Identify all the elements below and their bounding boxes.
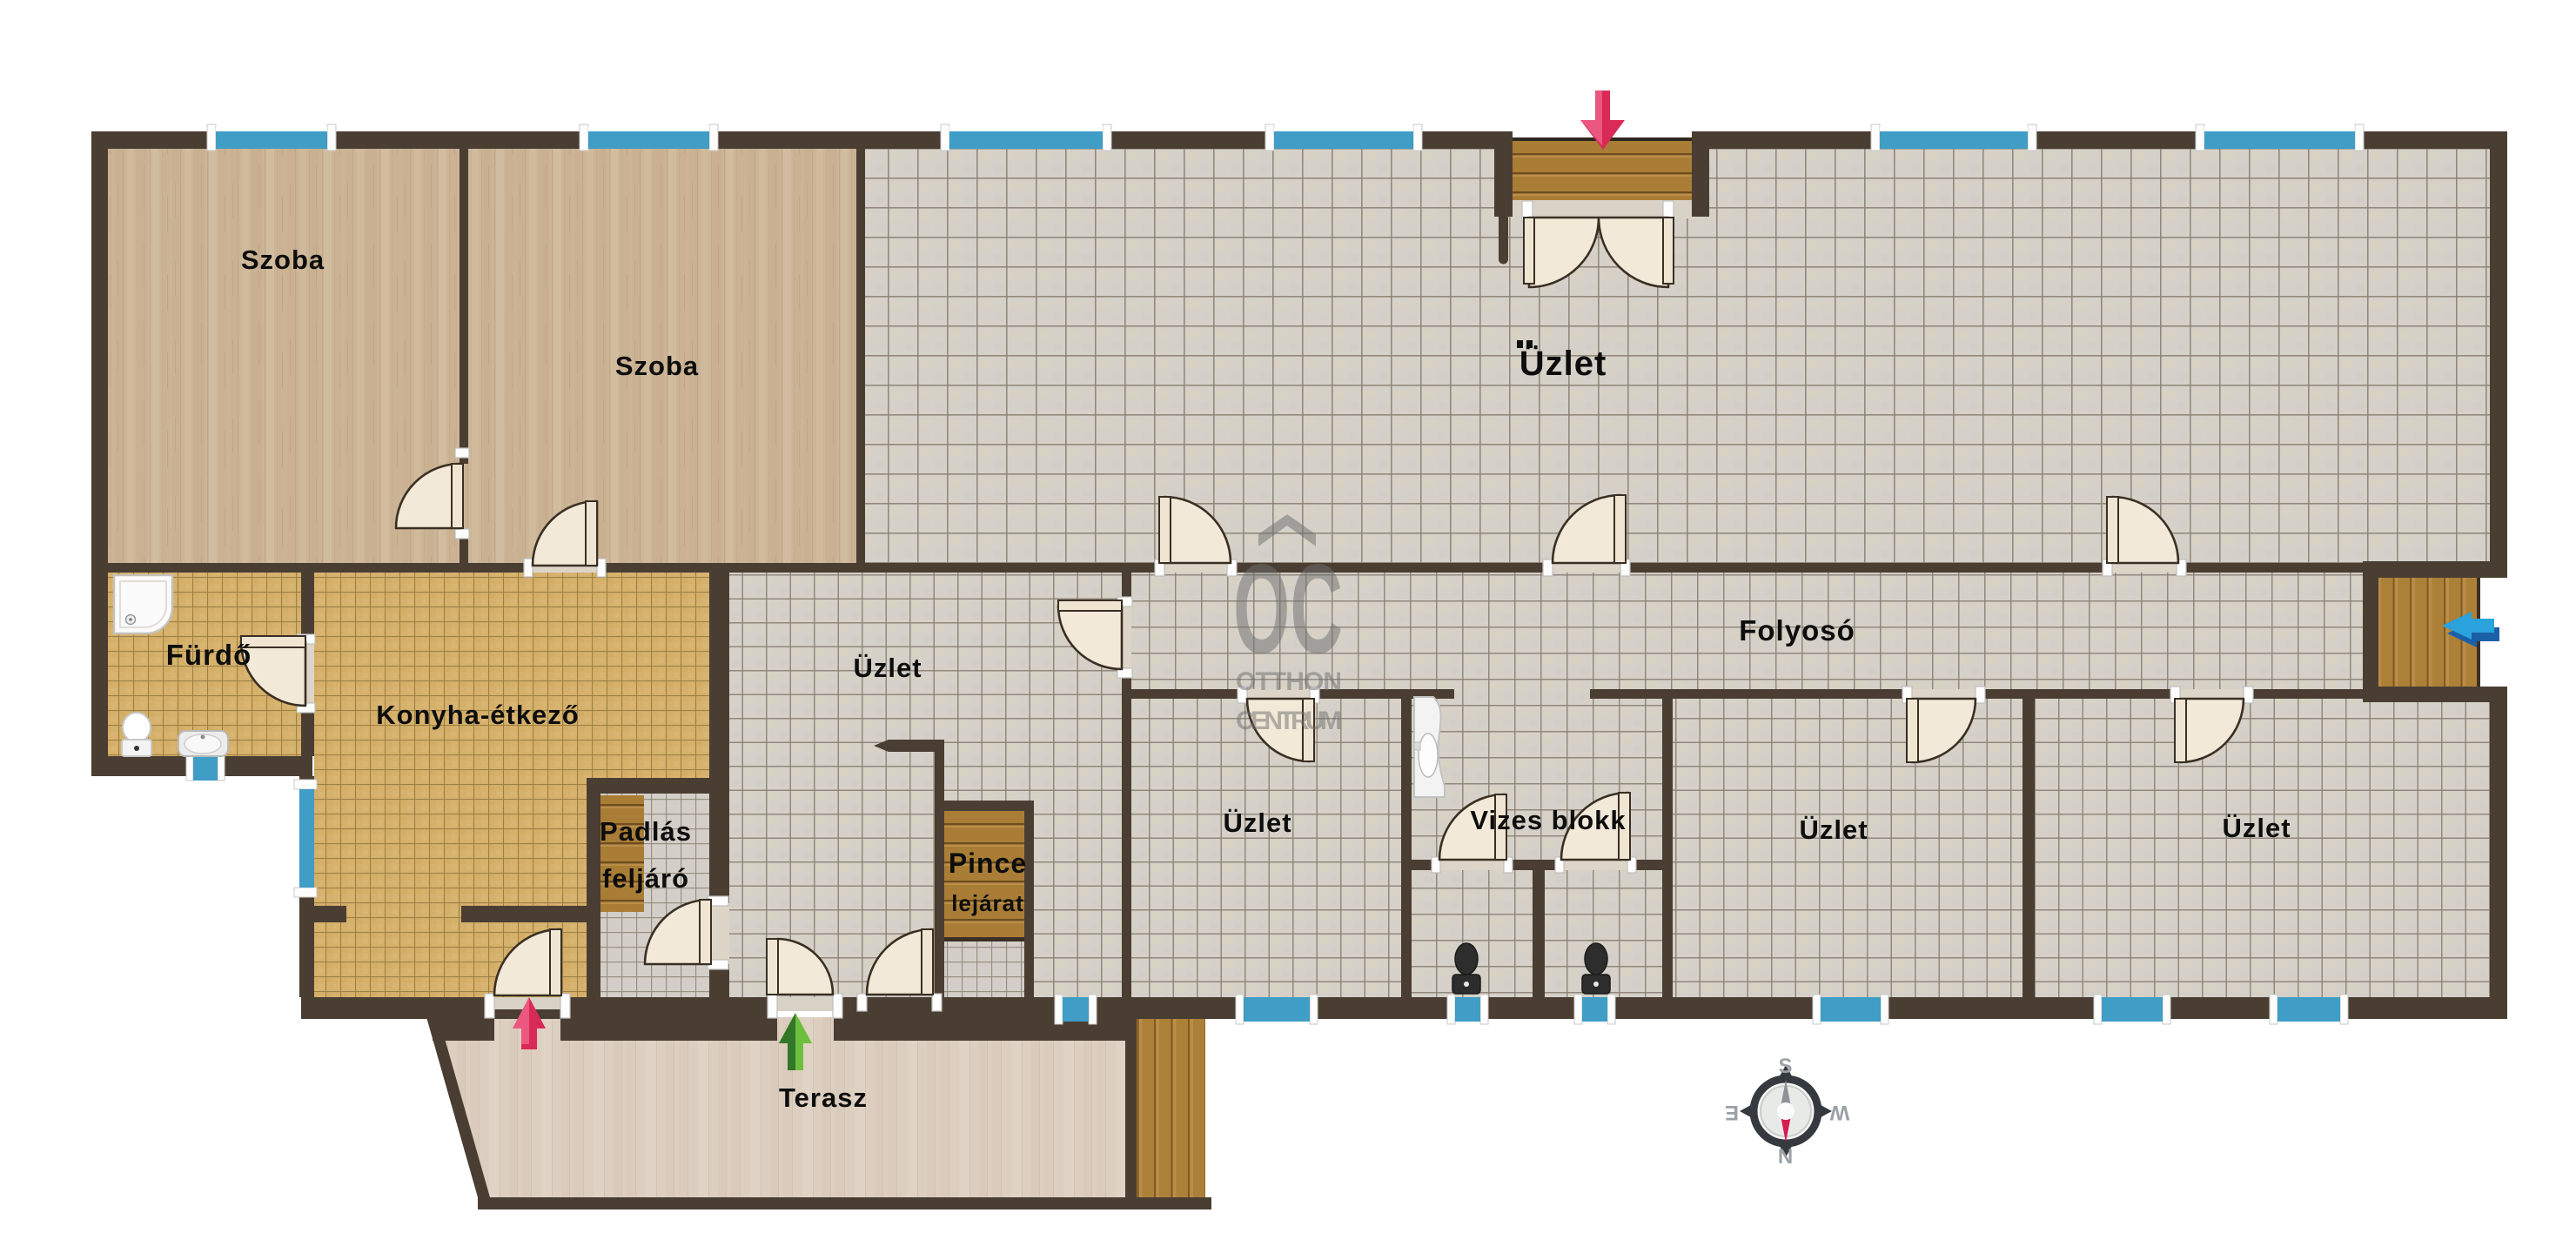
svg-text:Padlás: Padlás xyxy=(600,816,692,847)
svg-text:Üzlet: Üzlet xyxy=(1799,814,1868,845)
svg-text:Üzlet: Üzlet xyxy=(853,653,922,683)
svg-text:Fürdő: Fürdő xyxy=(166,639,252,671)
svg-text:Üzlet: Üzlet xyxy=(1519,344,1607,383)
svg-text:Szoba: Szoba xyxy=(615,351,699,381)
svg-text:Terasz: Terasz xyxy=(779,1082,868,1113)
svg-text:Konyha-étkező: Konyha-étkező xyxy=(376,700,579,730)
svg-text:Üzlet: Üzlet xyxy=(2222,813,2291,843)
svg-text:CENTRUM: CENTRUM xyxy=(1236,707,1342,735)
svg-text:Vizes blokk: Vizes blokk xyxy=(1470,805,1626,835)
svg-text:Pince: Pince xyxy=(949,848,1027,879)
svg-text:lejárat: lejárat xyxy=(951,890,1024,916)
svg-text:W: W xyxy=(1829,1101,1849,1124)
svg-text:S: S xyxy=(1778,1055,1793,1078)
svg-text:feljáró: feljáró xyxy=(602,863,689,894)
svg-text:E: E xyxy=(1725,1101,1739,1124)
svg-text:OC: OC xyxy=(1233,538,1343,680)
svg-text:Folyosó: Folyosó xyxy=(1739,614,1855,647)
svg-text:Szoba: Szoba xyxy=(241,245,325,275)
svg-text:N: N xyxy=(1778,1145,1794,1169)
svg-text:Üzlet: Üzlet xyxy=(1223,807,1291,838)
svg-text:OTTHON: OTTHON xyxy=(1236,667,1342,696)
